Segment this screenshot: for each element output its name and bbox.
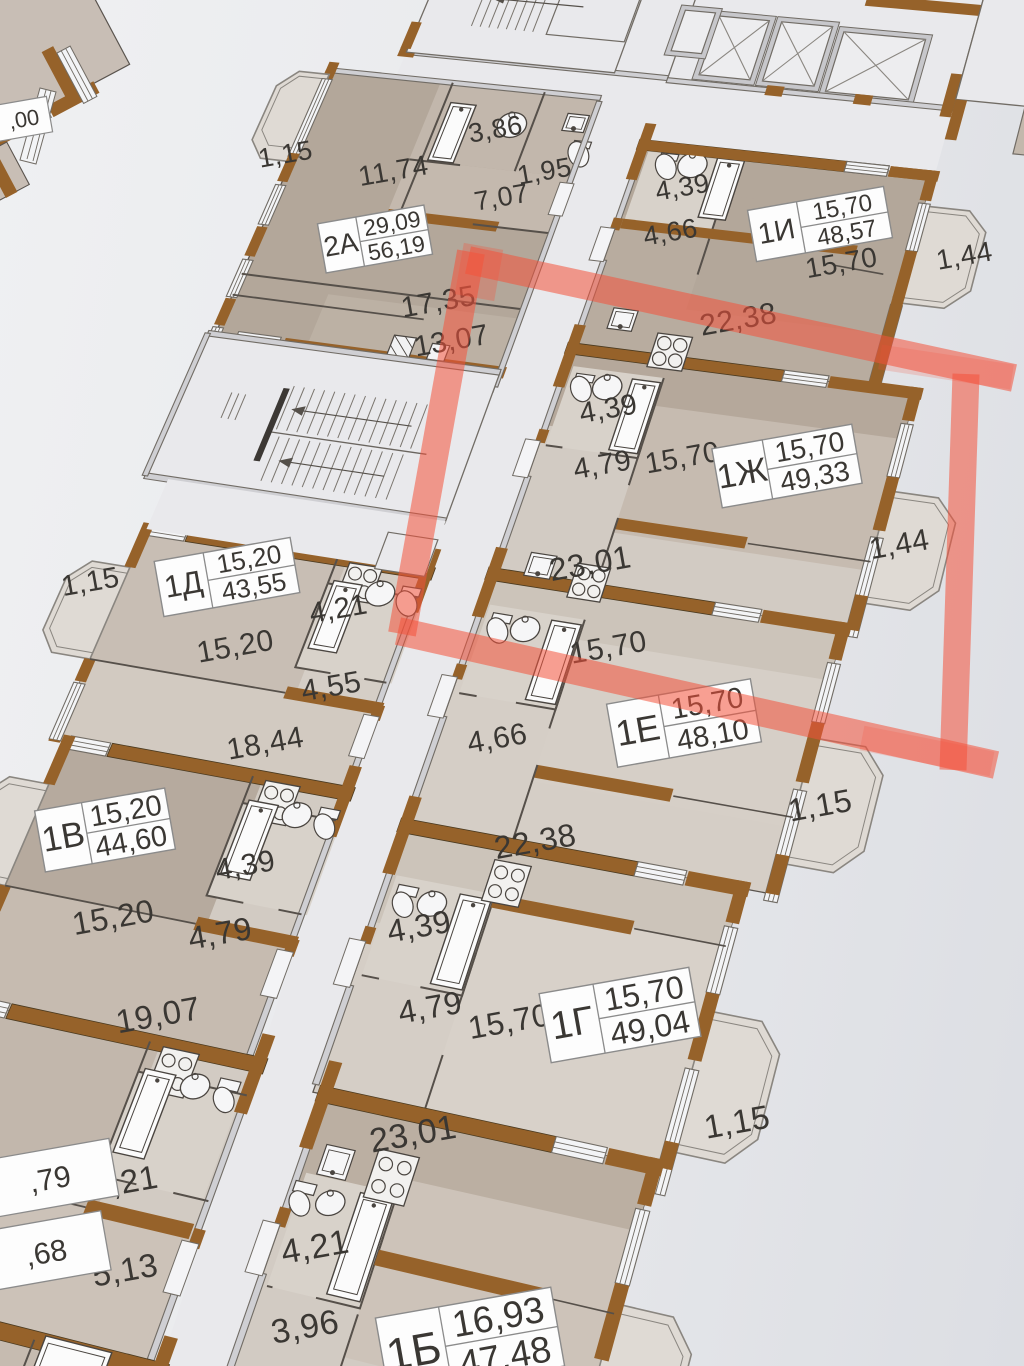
- svg-text:2А: 2А: [321, 226, 360, 263]
- svg-text:,00: ,00: [7, 104, 41, 134]
- svg-text:1Д: 1Д: [162, 564, 206, 605]
- svg-text:1Е: 1Е: [613, 706, 663, 754]
- svg-text:1Г: 1Г: [547, 999, 597, 1049]
- svg-text:1В: 1В: [39, 814, 88, 860]
- svg-text:1И: 1И: [756, 213, 798, 251]
